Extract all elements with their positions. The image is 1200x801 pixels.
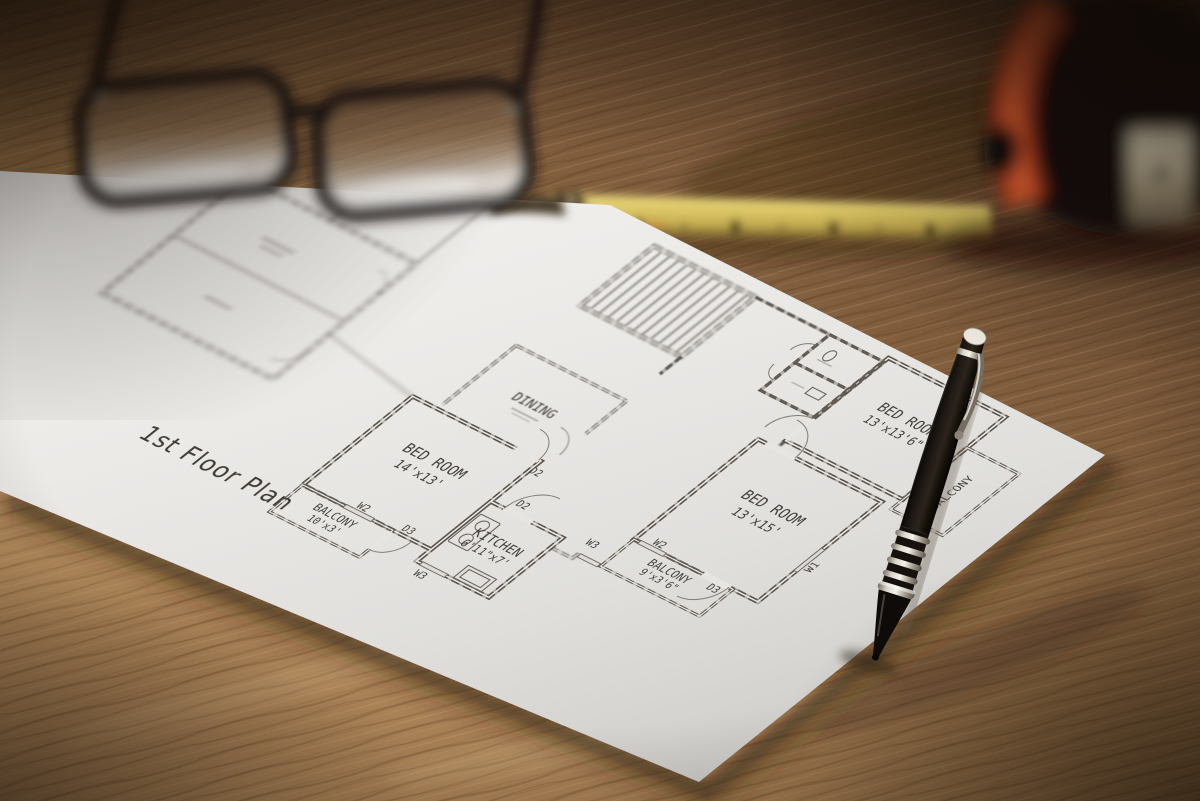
vignette-overlay (0, 0, 1200, 801)
photo-scene: BED ROOM 14'x13' BALCONY 10'x3' KITCHEN … (0, 0, 1200, 801)
